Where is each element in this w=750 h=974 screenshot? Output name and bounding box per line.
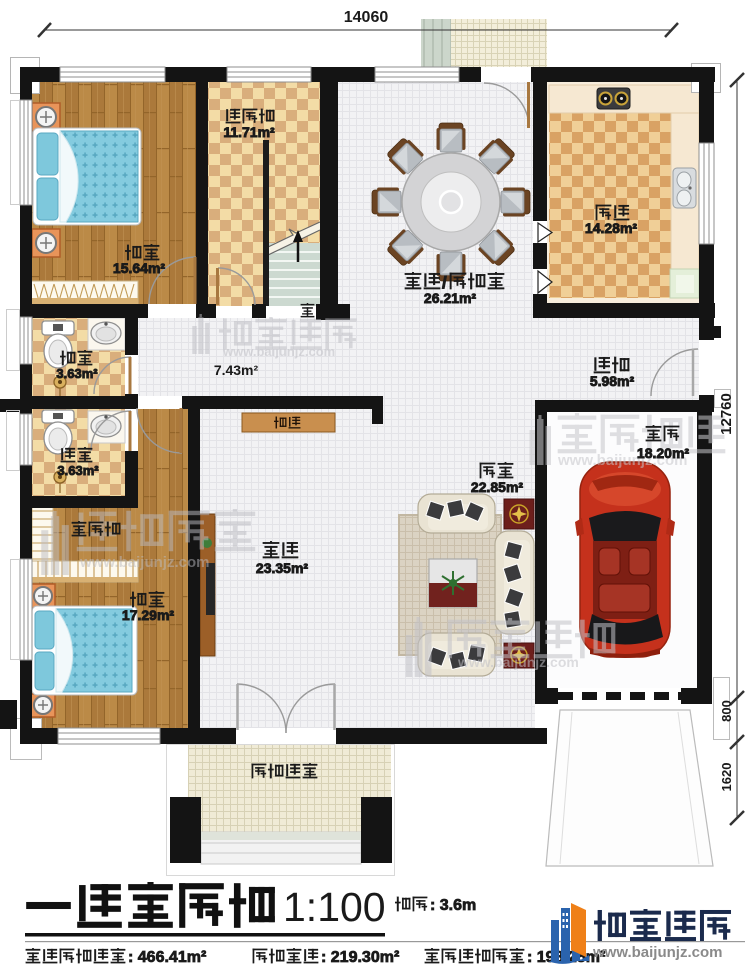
- svg-text:17.29m²: 17.29m²: [122, 607, 174, 623]
- svg-text:3.63m²: 3.63m²: [57, 463, 99, 478]
- svg-text:www.baijunjz.com: www.baijunjz.com: [79, 554, 209, 571]
- svg-text:15.64m²: 15.64m²: [113, 260, 165, 276]
- svg-text:14.28m²: 14.28m²: [585, 220, 637, 236]
- svg-text:www.baijunjz.com: www.baijunjz.com: [222, 344, 335, 359]
- svg-text:22.85m²: 22.85m²: [471, 479, 523, 495]
- svg-text:18.20m²: 18.20m²: [637, 445, 689, 461]
- svg-text:14060: 14060: [344, 9, 389, 26]
- svg-text:: 219.30m²: : 219.30m²: [321, 949, 399, 966]
- svg-text:: 466.41m²: : 466.41m²: [128, 949, 206, 966]
- svg-text:: 3.6m: : 3.6m: [430, 897, 476, 914]
- svg-text:1620: 1620: [719, 763, 734, 792]
- svg-text:1:100: 1:100: [283, 884, 386, 930]
- svg-text:www.baijunjz.com: www.baijunjz.com: [457, 654, 579, 670]
- svg-text:11.71m²: 11.71m²: [223, 124, 275, 140]
- svg-text:3.63m²: 3.63m²: [56, 366, 98, 381]
- svg-text:5.98m²: 5.98m²: [590, 373, 635, 389]
- svg-text:www.baijunjz.com: www.baijunjz.com: [592, 944, 722, 961]
- svg-text:800: 800: [719, 700, 734, 722]
- svg-text:12760: 12760: [718, 393, 735, 435]
- svg-text:26.21m²: 26.21m²: [424, 290, 476, 306]
- svg-text:23.35m²: 23.35m²: [256, 560, 308, 576]
- svg-text:7.43m²: 7.43m²: [214, 362, 259, 378]
